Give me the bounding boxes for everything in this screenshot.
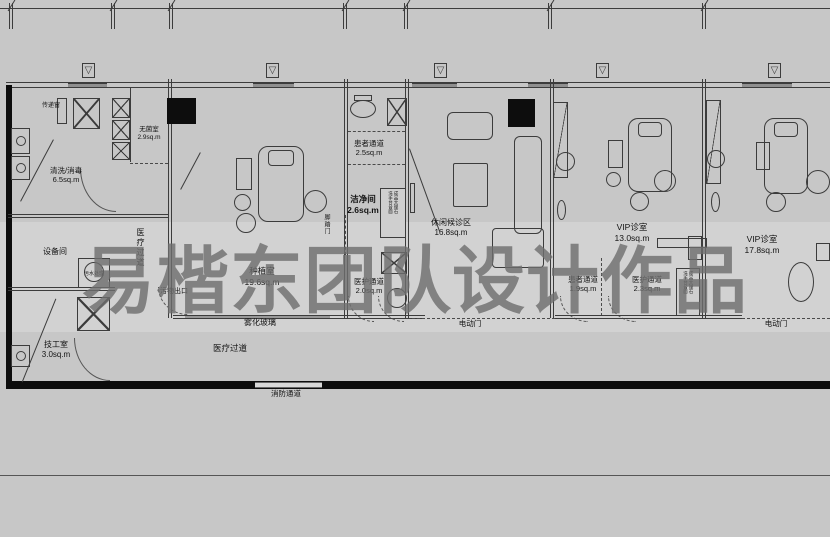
floorplan-screenshot: ▽ ▽ ▽ ▽ ▽ [0, 0, 830, 550]
sofa [514, 136, 542, 234]
fire-passage-label: 消防通道 [256, 389, 316, 398]
bottom-wall [6, 381, 830, 389]
wall-fixture [711, 192, 720, 212]
sink-unit [11, 128, 30, 154]
toilet-tank [354, 95, 372, 101]
window-segment [68, 83, 107, 88]
floor-rug [788, 262, 814, 302]
wall-cabinet [816, 243, 830, 261]
dental-chair-headrest [268, 150, 294, 166]
dental-unit [608, 140, 623, 168]
wall-wash-bottom [8, 214, 168, 218]
room-label-tech: 技工室3.0sq.m [24, 340, 88, 360]
column-black [508, 99, 535, 127]
coffee-table [453, 163, 488, 207]
room-label-wash: 清洗/消毒6.5sq.m [34, 166, 98, 185]
room-label-equipment: 设备间 [28, 247, 82, 257]
grid-tick [111, 3, 115, 29]
partition-dashed [348, 164, 405, 165]
dental-chair-headrest [774, 122, 798, 137]
spittoon [630, 192, 649, 211]
dental-chair-headrest [638, 122, 662, 137]
wall-tv [410, 183, 415, 213]
wall-fixture [557, 200, 566, 220]
doctor-stool [806, 170, 830, 194]
fire-exit-opening [255, 382, 322, 388]
grid-tick [9, 3, 13, 29]
vent-icon: ▽ [768, 63, 781, 78]
lower-frame-line [0, 475, 830, 476]
grid-tick [404, 3, 408, 29]
shaft-box [112, 142, 130, 160]
doctor-stool [654, 170, 676, 192]
room-label-sterile: 无菌室2.9sq.m [126, 126, 172, 142]
dental-unit [756, 142, 770, 170]
window-segment [412, 83, 457, 88]
shaft-box [112, 98, 130, 118]
sterile-door-dashed [130, 163, 168, 164]
window-segment [742, 83, 792, 88]
electric-door-label-right: 电动门 [752, 319, 800, 328]
sofa [447, 112, 493, 140]
toilet [350, 100, 376, 118]
dental-unit-arm [606, 172, 621, 187]
grid-tick [702, 3, 706, 29]
grid-tick [169, 3, 173, 29]
room-label-clean: 洁净间2.6sq.m [338, 194, 388, 215]
vent-icon: ▽ [82, 63, 95, 78]
door-leaf [180, 152, 201, 190]
shaft-box [73, 98, 100, 129]
pass-window-label: 传递窗 [34, 103, 68, 111]
grid-tick [548, 3, 552, 29]
dental-unit-arm [234, 194, 251, 211]
grid-tick [343, 3, 347, 29]
window-segment [528, 83, 568, 88]
vent-icon: ▽ [596, 63, 609, 78]
window-segment [253, 83, 294, 88]
closet-panel [706, 100, 721, 184]
bottom-margin [0, 537, 830, 550]
wall-sterile-left [130, 88, 131, 162]
watermark-text: 易楷东团队设计作品 [82, 222, 748, 328]
wall-clock [707, 150, 725, 168]
medical-passage-label: 医疗过道 [198, 343, 262, 354]
partition-dashed [348, 131, 405, 132]
wall-clock [556, 152, 575, 171]
dental-unit [236, 158, 252, 190]
shaft-box [387, 98, 407, 126]
spittoon [766, 192, 786, 212]
column-black [167, 98, 196, 124]
pass-window-box [57, 98, 67, 124]
corridor-label-patient-top: 患者通道2.5sq.m [342, 139, 396, 158]
doctor-stool [304, 190, 327, 213]
sink-unit [11, 156, 30, 180]
vent-icon: ▽ [266, 63, 279, 78]
vent-icon: ▽ [434, 63, 447, 78]
